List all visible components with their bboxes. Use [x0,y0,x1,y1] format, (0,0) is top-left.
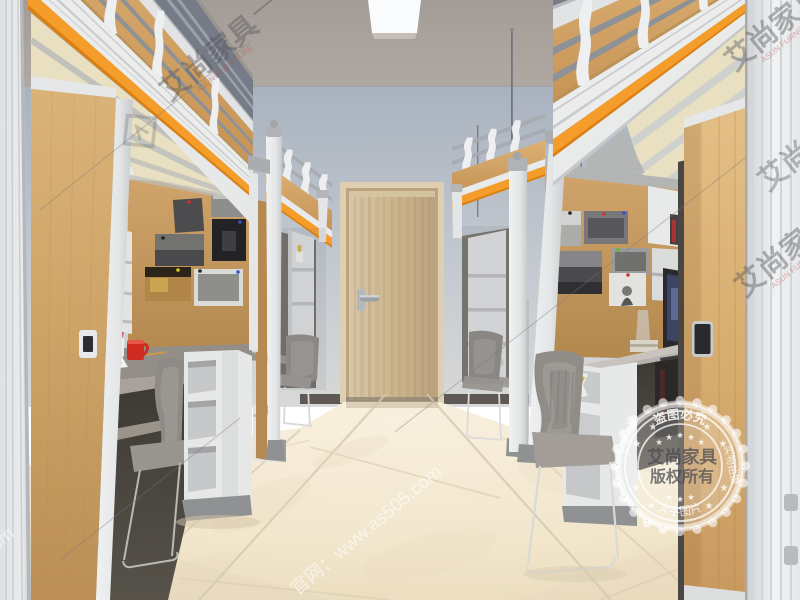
svg-text:★: ★ [687,432,695,442]
svg-text:★: ★ [647,501,656,512]
svg-text:版权所有: 版权所有 [649,467,714,486]
svg-text:艾尚家具: 艾尚家具 [647,447,717,467]
svg-text:★: ★ [665,492,673,502]
svg-text:★: ★ [655,437,663,447]
svg-text:★: ★ [687,492,695,502]
svg-text:★: ★ [676,430,684,440]
svg-text:★: ★ [705,501,714,512]
svg-text:★: ★ [720,483,729,494]
svg-text:★: ★ [632,483,641,494]
svg-text:★: ★ [697,437,705,447]
svg-text:★: ★ [676,494,684,504]
svg-text:★: ★ [665,432,673,442]
